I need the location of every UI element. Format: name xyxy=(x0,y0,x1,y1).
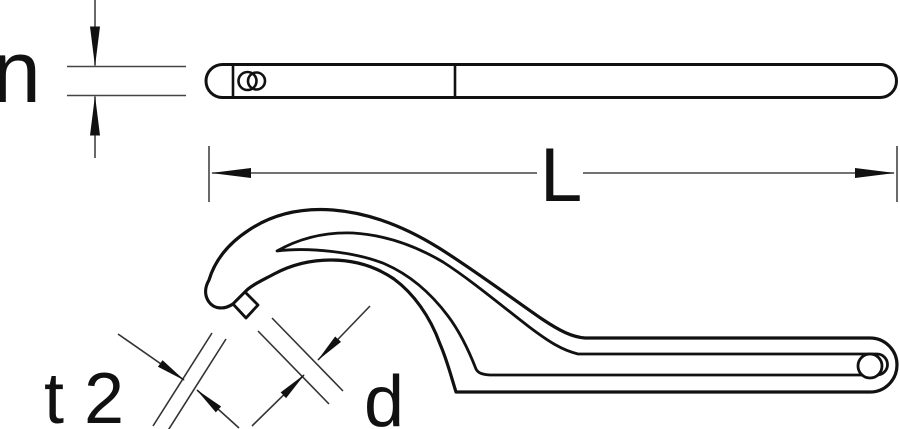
dimension-t2 xyxy=(118,333,239,429)
label-nose-diameter-d: d xyxy=(364,366,404,429)
dimension-d-extension-2 xyxy=(258,331,329,404)
dimension-d-arrow-sw xyxy=(252,375,304,426)
dimension-d-arrow-ne xyxy=(318,306,370,360)
dimension-d xyxy=(252,306,370,426)
label-thickness-n: n xyxy=(0,28,41,116)
wrench-side-view xyxy=(206,65,897,98)
label-nose-thickness-t2: t 2 xyxy=(44,363,124,429)
handle-hole xyxy=(858,354,882,378)
dimension-t2-extension-2 xyxy=(167,339,226,429)
dimension-n xyxy=(67,0,186,158)
hook-wrench-diagram-canvas xyxy=(0,0,900,429)
label-length-L: L xyxy=(540,138,582,214)
side-view-outline xyxy=(206,65,897,98)
dimension-t2-arrow-nw xyxy=(118,334,184,380)
dimension-t2-arrow-se xyxy=(197,390,239,428)
wrench-front-view xyxy=(206,210,897,392)
dimension-d-extension-1 xyxy=(272,318,343,391)
technical-drawing-hook-wrench: n L t 2 d xyxy=(0,0,900,429)
